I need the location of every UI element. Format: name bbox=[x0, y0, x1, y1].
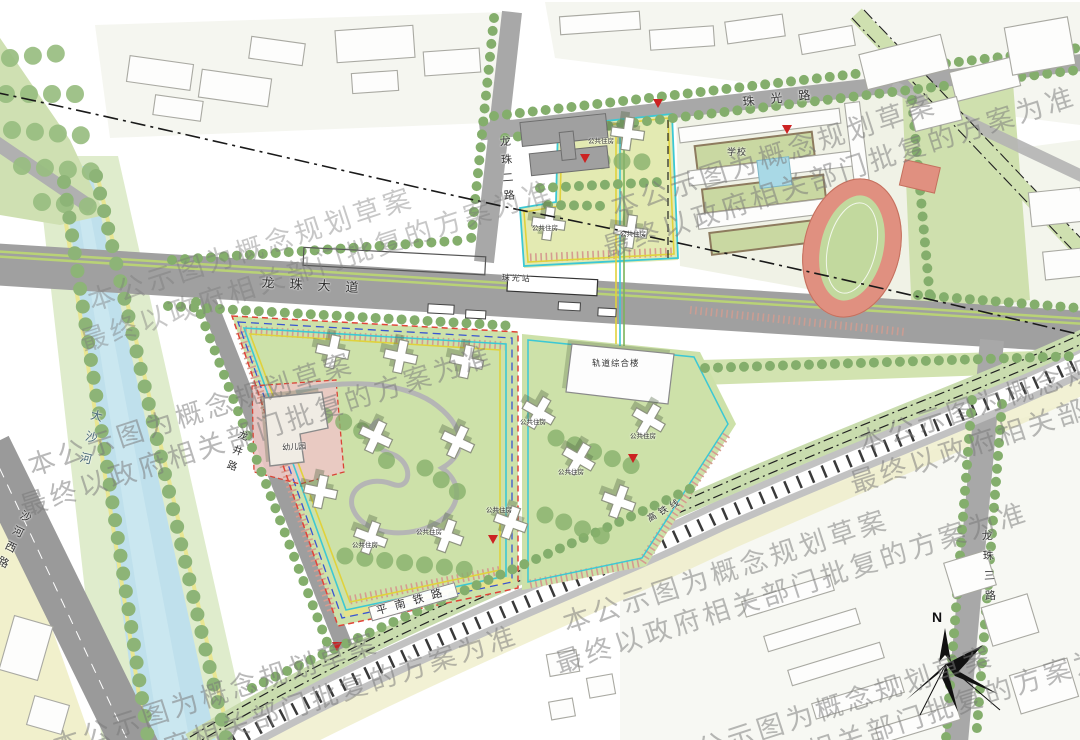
site-label-kindergarten: 幼儿园 bbox=[282, 443, 306, 452]
label-public-housing: 公共住房 bbox=[630, 434, 656, 441]
station-label-zhuguang: 珠光站 bbox=[502, 274, 532, 284]
label-public-housing: 公共住房 bbox=[532, 226, 558, 233]
label-public-housing: 公共住房 bbox=[588, 139, 614, 146]
site-label-rail-complex: 轨道综合楼 bbox=[592, 359, 640, 368]
label-public-housing: 公共住房 bbox=[416, 530, 442, 537]
label-public-housing: 公共住房 bbox=[352, 543, 378, 550]
label-public-housing: 公共住房 bbox=[558, 470, 584, 477]
label-public-housing: 公共住房 bbox=[520, 420, 546, 427]
site-label-school: 学校 bbox=[727, 148, 747, 157]
concept-plan-map: 本公示图为概念规划草案 最终以政府相关部门批复的方案为准 本公示图为概念规划草案… bbox=[0, 0, 1080, 740]
compass-north-label: N bbox=[932, 610, 942, 624]
label-public-housing: 公共住房 bbox=[486, 508, 512, 515]
label-public-housing: 公共住房 bbox=[620, 232, 646, 239]
